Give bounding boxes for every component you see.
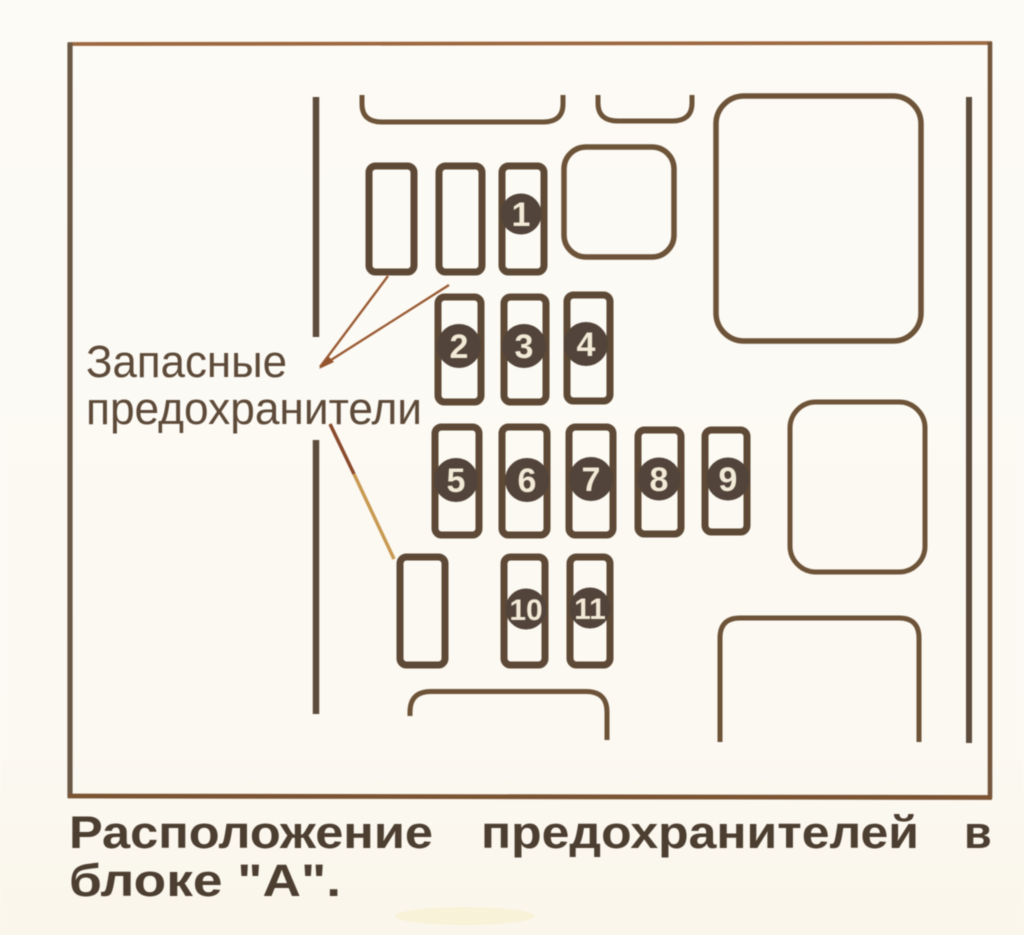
svg-text:в: в [964, 807, 992, 858]
svg-text:1: 1 [512, 196, 531, 234]
svg-text:предохранители: предохранители [86, 383, 422, 434]
svg-text:10: 10 [509, 594, 542, 627]
svg-text:3: 3 [515, 328, 534, 366]
svg-text:6: 6 [518, 462, 537, 500]
svg-text:5: 5 [447, 462, 466, 500]
svg-text:2: 2 [450, 328, 469, 366]
svg-text:Расположение: Расположение [69, 807, 433, 858]
svg-text:блоке "А".: блоке "А". [69, 855, 341, 906]
svg-text:11: 11 [574, 593, 606, 626]
svg-text:9: 9 [719, 461, 738, 499]
svg-text:8: 8 [650, 461, 669, 499]
svg-text:Запасные: Запасные [86, 336, 287, 387]
svg-text:7: 7 [582, 461, 601, 499]
svg-text:4: 4 [577, 326, 596, 364]
svg-text:предохранителей: предохранителей [481, 807, 919, 858]
